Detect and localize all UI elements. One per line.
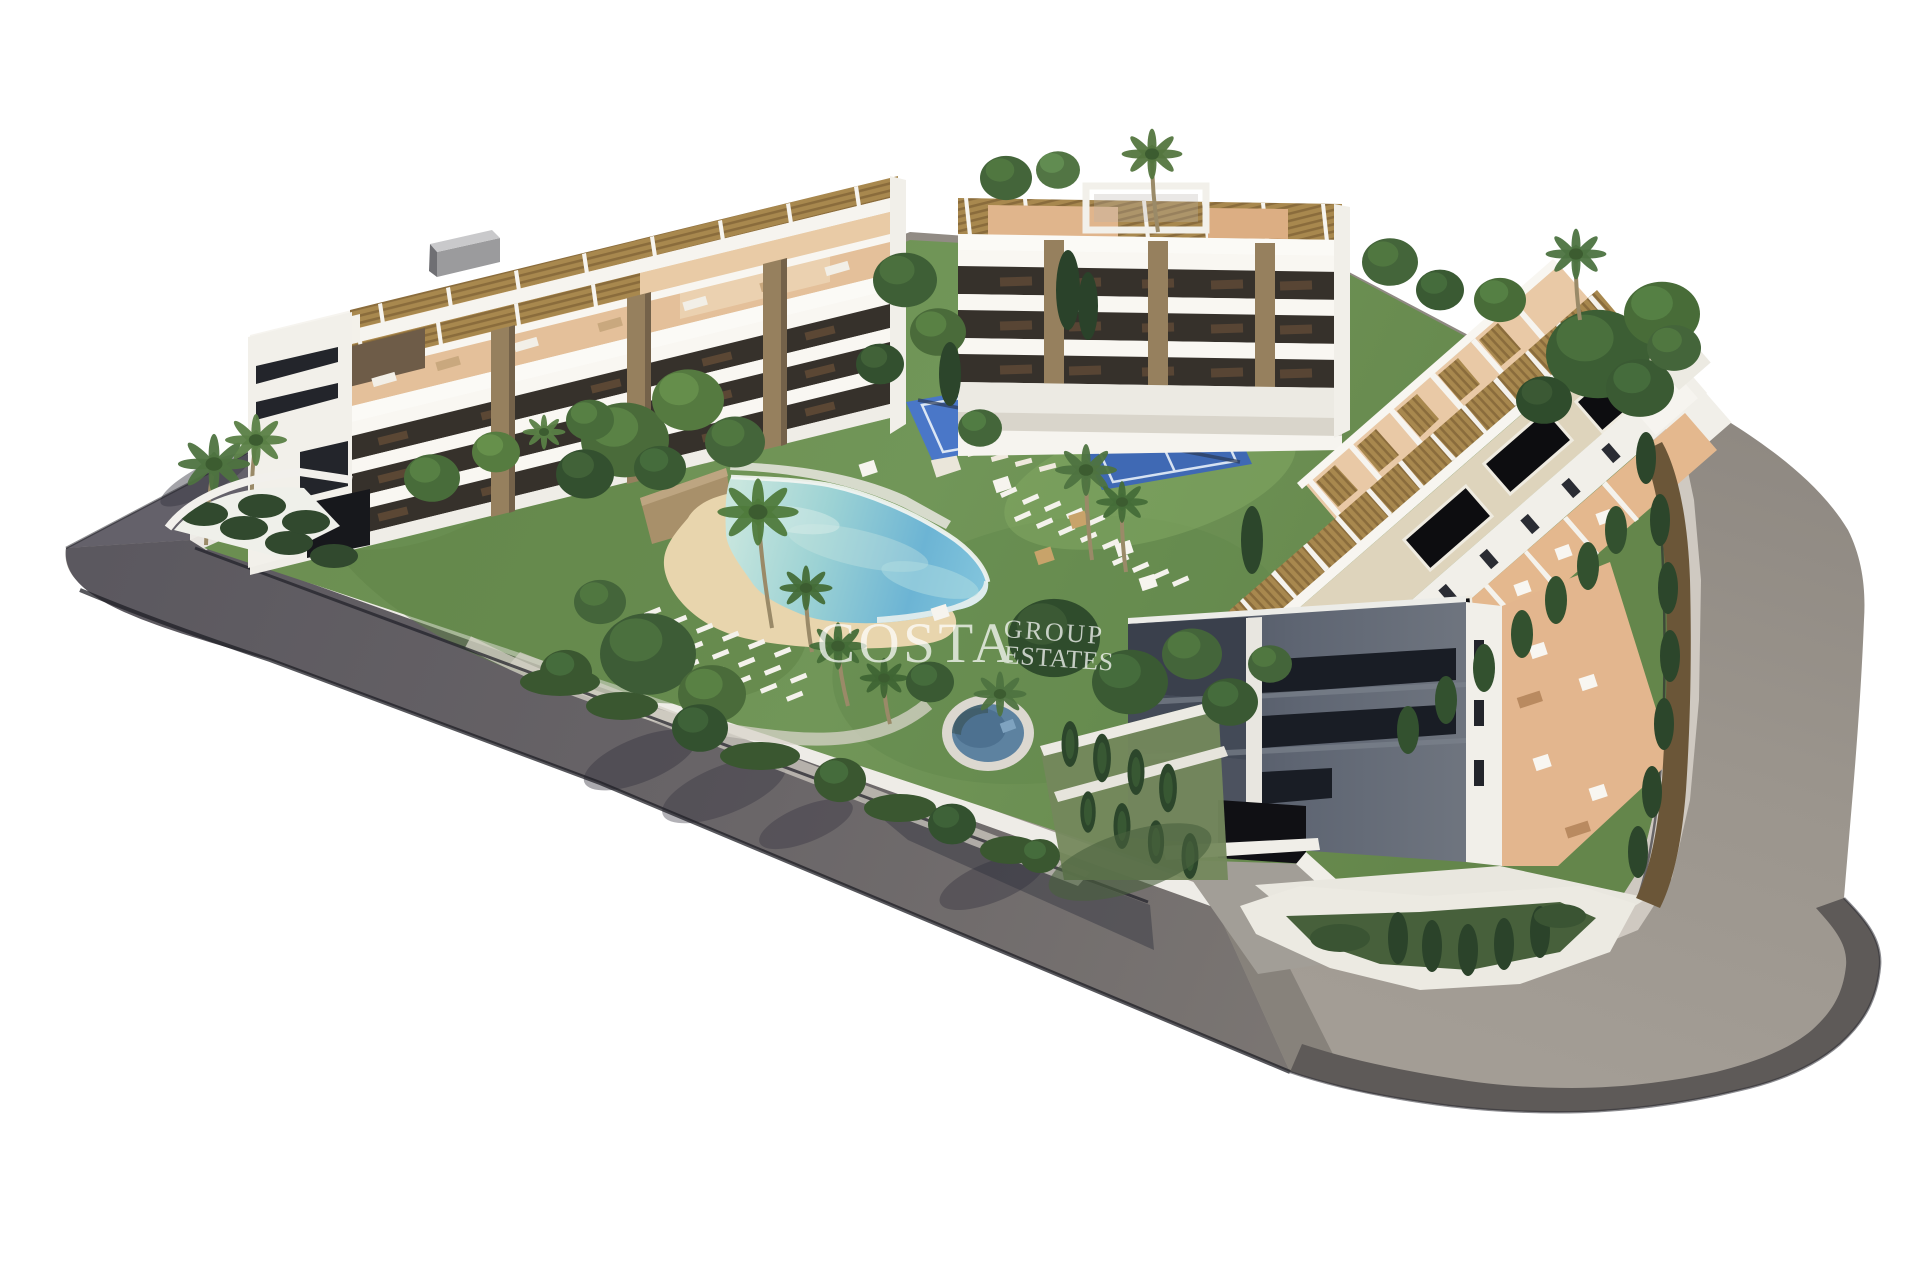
svg-text:COSTA: COSTA [817, 612, 1017, 675]
